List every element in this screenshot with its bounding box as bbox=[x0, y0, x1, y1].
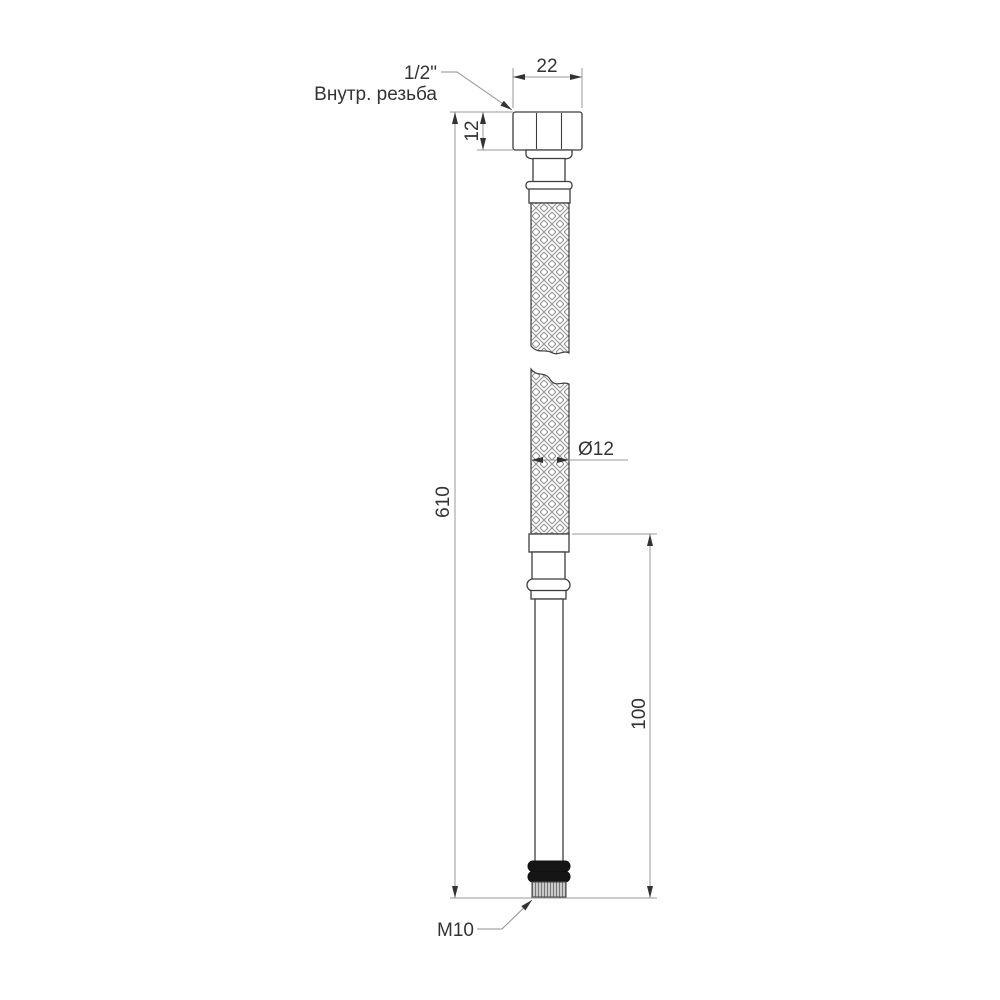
o-ring-upper bbox=[528, 861, 570, 872]
collar-ring bbox=[527, 579, 570, 591]
lower-neck bbox=[532, 552, 565, 580]
dim-label-d12: Ø12 bbox=[578, 439, 614, 460]
braided-hose-upper bbox=[531, 203, 569, 354]
callout-top-thread: 1/2" Внутр. резьба bbox=[314, 63, 512, 110]
dim-label-12: 12 bbox=[462, 120, 483, 141]
dim-label-22: 22 bbox=[536, 56, 557, 77]
label-top-thread-type: Внутр. резьба bbox=[314, 84, 437, 105]
upper-ferrule bbox=[529, 189, 570, 203]
dimension-nut-width: 22 bbox=[513, 56, 582, 108]
callout-bottom-thread: M10 bbox=[437, 900, 532, 941]
hex-nut bbox=[513, 112, 582, 150]
label-top-thread-size: 1/2" bbox=[404, 63, 437, 84]
dimension-overall-length: 610 bbox=[433, 112, 455, 898]
dimension-tube-length: 100 bbox=[572, 534, 657, 898]
nut-collar bbox=[526, 150, 572, 159]
dim-label-610: 610 bbox=[433, 486, 454, 518]
braided-hose-lower bbox=[531, 369, 569, 534]
m10-thread-section bbox=[532, 882, 566, 897]
label-m10: M10 bbox=[437, 920, 474, 941]
technical-drawing-page: 22 12 610 Ø12 100 1/2" Внутр. резьба M10 bbox=[0, 0, 1000, 1000]
lower-ferrule bbox=[529, 534, 569, 552]
o-ring-lower bbox=[528, 872, 570, 883]
dim-label-100: 100 bbox=[629, 698, 650, 730]
leader-top-thread bbox=[441, 72, 512, 110]
connection-tube bbox=[535, 599, 563, 862]
upper-flare-ring bbox=[526, 182, 572, 190]
upper-neck bbox=[533, 159, 565, 184]
dimension-nut-height: 12 bbox=[450, 112, 513, 150]
collar-step bbox=[531, 591, 566, 600]
leader-m10 bbox=[477, 900, 532, 929]
hose-technical-drawing: 22 12 610 Ø12 100 1/2" Внутр. резьба M10 bbox=[0, 0, 1000, 1000]
hose-assembly bbox=[513, 112, 582, 897]
